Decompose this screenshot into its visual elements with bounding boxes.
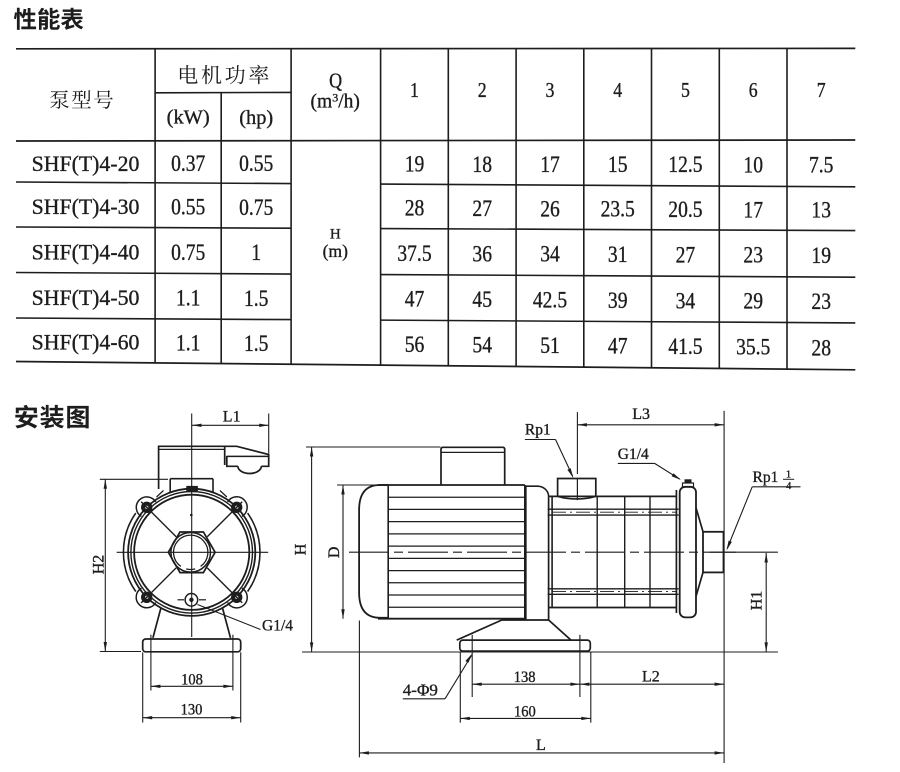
svg-text:34: 34	[540, 242, 560, 267]
svg-text:23: 23	[743, 243, 763, 268]
svg-text:(m3/h): (m3/h)	[311, 90, 360, 112]
svg-text:35.5: 35.5	[736, 335, 770, 360]
svg-text:Rp1: Rp1	[753, 469, 779, 486]
svg-text:56: 56	[405, 332, 425, 357]
svg-text:13: 13	[811, 198, 831, 223]
svg-text:SHF(T)4-20: SHF(T)4-20	[32, 152, 140, 176]
svg-text:H1: H1	[748, 591, 765, 611]
svg-text:3: 3	[546, 78, 555, 102]
svg-text:L2: L2	[642, 669, 660, 686]
svg-text:19: 19	[811, 243, 831, 268]
svg-text:Rp1: Rp1	[525, 421, 551, 438]
svg-text:0.75: 0.75	[171, 240, 205, 265]
svg-text:47: 47	[405, 287, 425, 312]
svg-text:23.5: 23.5	[601, 197, 635, 222]
svg-text:54: 54	[472, 333, 492, 358]
svg-text:1.5: 1.5	[244, 286, 268, 311]
svg-text:L1: L1	[223, 408, 241, 425]
svg-text:G1/4: G1/4	[618, 446, 649, 463]
svg-text:L: L	[536, 737, 546, 754]
svg-text:29: 29	[743, 289, 763, 314]
svg-text:15: 15	[608, 152, 628, 177]
svg-text:51: 51	[540, 333, 560, 358]
svg-text:0.75: 0.75	[239, 195, 273, 220]
svg-text:10: 10	[743, 152, 763, 177]
svg-text:23: 23	[811, 289, 831, 314]
svg-text:2: 2	[478, 78, 487, 102]
svg-text:SHF(T)4-50: SHF(T)4-50	[32, 286, 140, 310]
svg-text:1.1: 1.1	[176, 285, 200, 310]
svg-text:17: 17	[540, 152, 560, 177]
svg-text:SHF(T)4-30: SHF(T)4-30	[32, 195, 140, 219]
svg-text:6: 6	[749, 78, 758, 102]
svg-text:130: 130	[181, 701, 203, 718]
svg-text:138: 138	[514, 669, 536, 686]
svg-text:108: 108	[181, 671, 203, 688]
svg-text:(hp): (hp)	[239, 107, 273, 129]
svg-text:(kW): (kW)	[167, 106, 210, 128]
svg-text:27: 27	[676, 242, 696, 267]
svg-text:12.5: 12.5	[668, 152, 702, 177]
svg-text:28: 28	[811, 335, 831, 360]
svg-text:7.5: 7.5	[809, 153, 833, 178]
svg-text:SHF(T)4-60: SHF(T)4-60	[32, 330, 140, 354]
svg-text:17: 17	[743, 197, 763, 222]
svg-text:19: 19	[405, 152, 425, 177]
svg-text:0.55: 0.55	[239, 151, 273, 176]
svg-text:G1/4: G1/4	[262, 618, 293, 635]
svg-text:L3: L3	[632, 406, 650, 423]
svg-text:H: H	[292, 543, 309, 555]
svg-text:0.37: 0.37	[171, 151, 205, 176]
svg-text:0.55: 0.55	[171, 195, 205, 220]
svg-text:160: 160	[514, 703, 536, 720]
svg-text:31: 31	[608, 242, 628, 267]
svg-text:27: 27	[472, 196, 492, 221]
svg-text:D: D	[326, 547, 343, 559]
svg-text:(m): (m)	[323, 241, 348, 261]
svg-text:26: 26	[540, 196, 560, 221]
svg-text:36: 36	[472, 241, 492, 266]
svg-text:4: 4	[613, 78, 622, 102]
svg-text:41.5: 41.5	[668, 334, 702, 359]
svg-text:18: 18	[472, 152, 492, 177]
svg-text:1: 1	[410, 78, 419, 102]
svg-text:7: 7	[817, 78, 826, 102]
svg-text:1.5: 1.5	[244, 331, 268, 356]
svg-text:4-Φ9: 4-Φ9	[403, 680, 438, 699]
svg-text:SHF(T)4-40: SHF(T)4-40	[32, 240, 140, 264]
svg-text:1.1: 1.1	[176, 330, 200, 355]
svg-text:34: 34	[676, 288, 696, 313]
svg-text:20.5: 20.5	[668, 197, 702, 222]
svg-text:H2: H2	[90, 555, 107, 575]
svg-text:H: H	[330, 226, 341, 242]
svg-text:42.5: 42.5	[533, 288, 567, 313]
svg-text:39: 39	[608, 288, 628, 313]
svg-text:Q: Q	[329, 69, 342, 93]
svg-text:28: 28	[405, 196, 425, 221]
svg-text:37.5: 37.5	[397, 241, 431, 266]
svg-text:1: 1	[251, 240, 261, 265]
svg-text:47: 47	[608, 334, 628, 359]
svg-text:45: 45	[472, 287, 492, 312]
svg-text:5: 5	[681, 78, 690, 102]
